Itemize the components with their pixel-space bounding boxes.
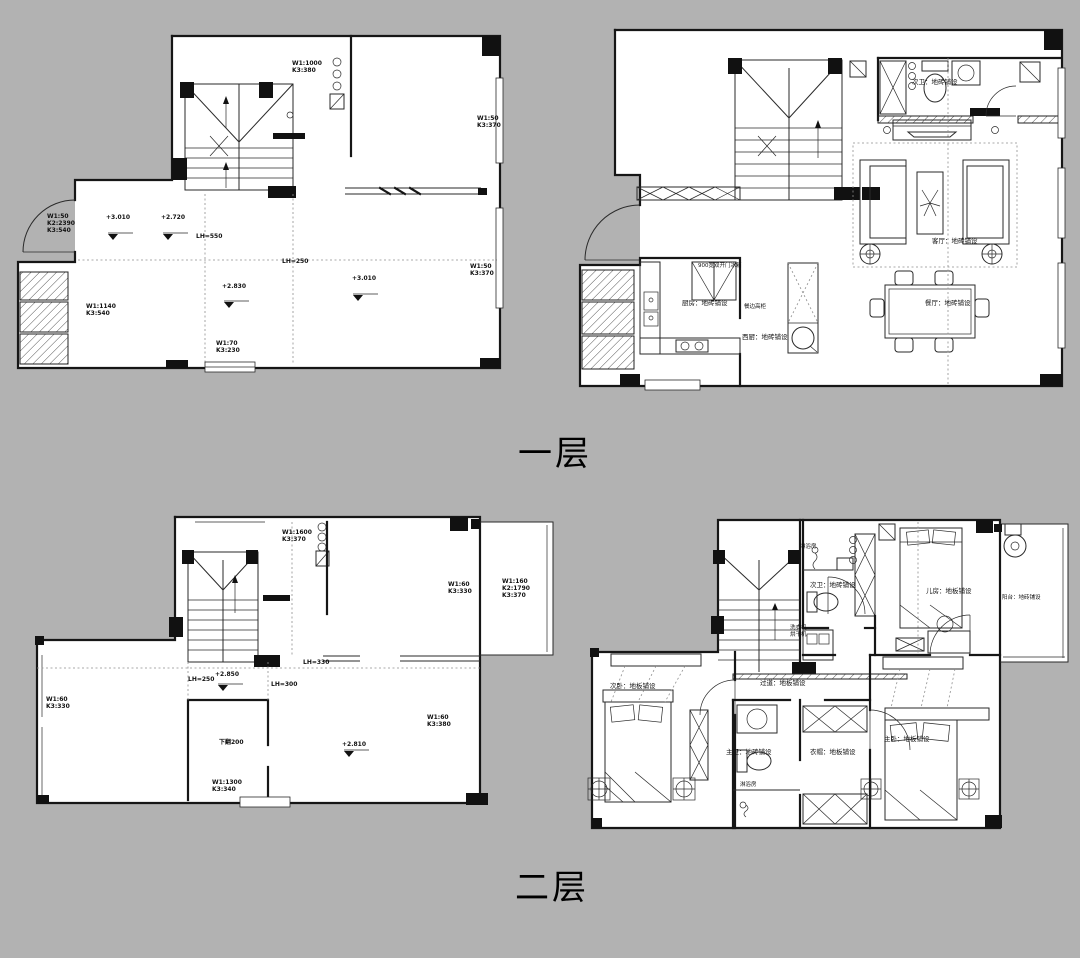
level-mark: +2.850 xyxy=(215,671,239,678)
room-label-hallway: 过道：地板铺设 xyxy=(760,679,806,687)
floor1-structural-plan xyxy=(15,8,530,400)
room-label-balcony: 阳台：地砖铺设 xyxy=(1002,595,1041,602)
tag-lintel: LH=330 xyxy=(303,659,329,666)
caption-floor2: 二层 xyxy=(497,860,607,909)
room-label-cloakroom: 衣帽：地板铺设 xyxy=(810,748,856,756)
room-label-living: 客厅：地砖铺设 xyxy=(932,237,978,245)
tag-door-left: W1:50 K2:2390 K3:540 xyxy=(47,213,75,235)
tag-window-right-lower: W1:60 K3:380 xyxy=(427,714,451,728)
level-mark: +2.810 xyxy=(342,741,366,748)
note-tall-cabinet: 餐边高柜 xyxy=(744,304,766,311)
room-label-kids-room: 儿房：地板铺设 xyxy=(926,587,972,595)
tag-lintel: LH=250 xyxy=(188,676,214,683)
room-label-bedroom2: 次卧：地板铺设 xyxy=(610,682,656,690)
tag-window-top: W1:1000 K3:380 xyxy=(292,60,322,74)
room-label-kitchen: 厨房：地砖铺设 xyxy=(682,299,728,307)
caption-floor1: 一层 xyxy=(503,426,607,475)
level-mark: +2.830 xyxy=(222,283,246,290)
tag-window-right-upper: W1:60 K3:330 xyxy=(448,581,472,595)
tag-balcony-door: W1:160 K2:1790 K3:370 xyxy=(502,578,530,600)
floorplan-sheet: W1:1000 K3:380 W1:50 K3:370 W1:50 K2:239… xyxy=(0,0,1080,958)
tag-window-bottom: W1:70 K3:230 xyxy=(216,340,240,354)
note-fridge: 900宽双开门冰箱 xyxy=(698,263,742,270)
level-mark: +3.010 xyxy=(106,214,130,221)
floor1-furnished-plan xyxy=(578,8,1072,400)
note-dropped-slab: 下翻200 xyxy=(219,739,244,746)
tag-lintel: LH=300 xyxy=(271,681,297,688)
note-washer-dryer: 洗衣机 烘干机 xyxy=(790,625,807,639)
room-label-master-bath: 主卫：地砖铺设 xyxy=(726,748,772,756)
tag-window-right-lower: W1:50 K3:370 xyxy=(470,263,494,277)
room-label-guest-bath: 次卫：地砖铺设 xyxy=(912,78,958,86)
floor2-furnished-plan xyxy=(585,510,1075,840)
level-mark: +2.720 xyxy=(161,214,185,221)
room-label-guest-bath: 次卫：地砖铺设 xyxy=(810,581,856,589)
tag-window-top: W1:1600 K3:370 xyxy=(282,529,312,543)
level-mark: +3.010 xyxy=(352,275,376,282)
note-shower-room: 淋浴房 xyxy=(800,544,817,551)
room-label-west-kitchen: 西厨：地砖铺设 xyxy=(742,333,788,341)
tag-window-left: W1:1140 K3:540 xyxy=(86,303,116,317)
tag-window-right-upper: W1:50 K3:370 xyxy=(477,115,501,129)
tag-lintel: LH=550 xyxy=(196,233,222,240)
tag-lintel: LH=250 xyxy=(282,258,308,265)
note-shower-room: 淋浴房 xyxy=(740,782,757,789)
tag-window-left: W1:60 K3:330 xyxy=(46,696,70,710)
floor2-structural-plan xyxy=(30,505,560,820)
room-label-master: 主卧：地板铺设 xyxy=(884,735,930,743)
room-label-dining: 餐厅：地砖铺设 xyxy=(925,299,971,307)
tag-window-bottom: W1:1300 K3:340 xyxy=(212,779,242,793)
